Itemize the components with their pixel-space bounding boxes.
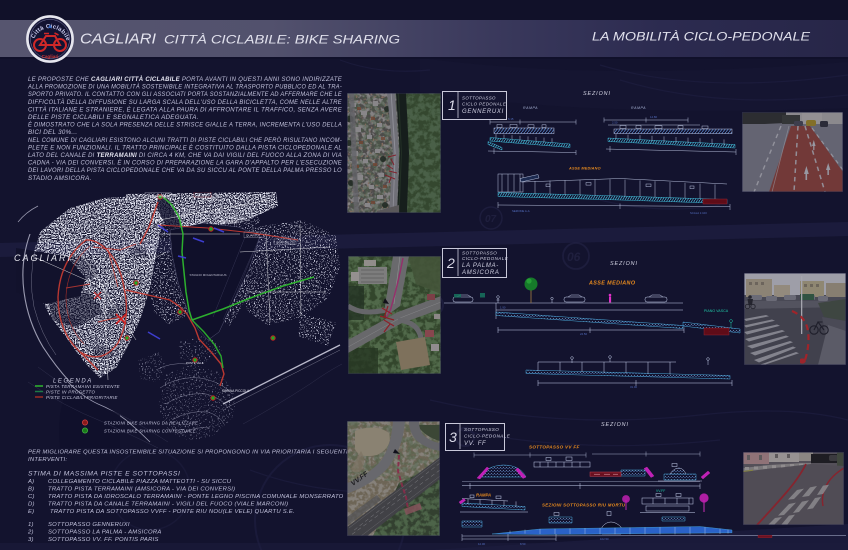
svg-text:6.15: 6.15: [508, 117, 514, 121]
svg-text:BICI DEL 30%...: BICI DEL 30%...: [28, 129, 77, 136]
svg-text:SOTTOPASSO VV FF: SOTTOPASSO VV FF: [529, 445, 580, 450]
svg-text:CICLO-PEDONALE: CICLO-PEDONALE: [462, 256, 509, 261]
svg-text:SELARGIUS: SELARGIUS: [201, 196, 218, 200]
svg-text:QUARTELLO: QUARTELLO: [276, 240, 295, 244]
svg-text:2: 2: [446, 255, 455, 271]
svg-text:D)TRATTO PISTA DA CANALE TERRA: D)TRATTO PISTA DA CANALE TERRAMAINI - VI…: [28, 502, 288, 508]
svg-text:STAZIONI BIKE SHARING DA REALI: STAZIONI BIKE SHARING DA REALIZZARE: [104, 421, 198, 426]
svg-text:DELLE PISTE CICLABILI E SEGNAL: DELLE PISTE CICLABILI E SEGNALETICA ADEG…: [28, 114, 199, 121]
svg-text:RAMPA: RAMPA: [523, 106, 538, 110]
svg-text:STADIO AMSICORA.: STADIO AMSICORA.: [28, 175, 92, 182]
svg-text:MONSERRATO: MONSERRATO: [148, 194, 170, 198]
svg-text:SOTTOPASSO: SOTTOPASSO: [464, 427, 499, 432]
svg-text:SPORTO PRIVATO. IL CONTATTO CO: SPORTO PRIVATO. IL CONTATTO CON GLI ASSO…: [28, 91, 343, 98]
svg-text:2.50: 2.50: [612, 121, 618, 125]
svg-text:06: 06: [567, 250, 581, 264]
svg-text:SEZIONE A-A: SEZIONE A-A: [512, 209, 530, 213]
svg-text:CAGLIARI: CAGLIARI: [14, 253, 72, 263]
svg-text:ASSE MEDIANO: ASSE MEDIANO: [588, 281, 636, 287]
svg-text:DEI LAVORI DELLA PISTA CICLOPE: DEI LAVORI DELLA PISTA CICLOPEDONALE CHE…: [28, 167, 342, 174]
svg-text:SOTTOPASSO: SOTTOPASSO: [462, 251, 497, 256]
svg-text:PONTE VELE: PONTE VELE: [186, 361, 204, 365]
svg-text:E)TRATTO PISTA DA SOTTOPASSO V: E)TRATTO PISTA DA SOTTOPASSO VVFF - PONT…: [28, 509, 295, 515]
svg-text:CICLO-PEDONALE: CICLO-PEDONALE: [464, 434, 511, 439]
svg-text:È DIMOSTRATO CHE LA SOLA PRESE: È DIMOSTRATO CHE LA SOLA PRESENZA DELLE …: [28, 122, 342, 129]
svg-text:SCALA 1:100: SCALA 1:100: [690, 211, 707, 215]
svg-text:LA PALMA-: LA PALMA-: [462, 263, 499, 269]
svg-text:LE PROPOSTE CHE CAGLIARI CITTÀ: LE PROPOSTE CHE CAGLIARI CITTÀ CICLABILE…: [28, 76, 343, 83]
svg-text:SEZIONI SOTTOPASSO RIU MORTU: SEZIONI SOTTOPASSO RIU MORTU: [542, 503, 626, 508]
svg-text:CITTÀ ITALIANE E STRANIERE, È: CITTÀ ITALIANE E STRANIERE, È LEGATA ALL…: [28, 106, 343, 113]
svg-text:PLETE E NON FUNZIONALI. IL TRA: PLETE E NON FUNZIONALI. IL TRATTO PRINCI…: [28, 144, 342, 151]
svg-text:ALLA PROMOZIONE DI UNA MOBILIT: ALLA PROMOZIONE DI UNA MOBILITÀ SOSTENIB…: [27, 84, 342, 91]
svg-text:PISTA TERRAMAINI ESISTENTE: PISTA TERRAMAINI ESISTENTE: [46, 384, 120, 389]
svg-text:14.80: 14.80: [650, 115, 657, 119]
svg-text:C)TRATTO PISTA DA IDROSCALO TE: C)TRATTO PISTA DA IDROSCALO TERRAMAINI -…: [28, 494, 344, 500]
svg-text:RAMPA: RAMPA: [476, 493, 491, 498]
svg-text:2)SOTTOPASSO LA PALMA - AMSICO: 2)SOTTOPASSO LA PALMA - AMSICORA: [27, 530, 162, 536]
svg-text:1)SOTTOPASSO GENNERUXI: 1)SOTTOPASSO GENNERUXI: [28, 522, 130, 528]
svg-text:8.50: 8.50: [520, 542, 526, 546]
svg-text:B)TRATTO PISTA TERRAMAINI (AMS: B)TRATTO PISTA TERRAMAINI (AMSICORA - VI…: [28, 487, 235, 493]
svg-text:PISTE CICLABILI PRIORITARIE: PISTE CICLABILI PRIORITARIE: [46, 395, 118, 400]
svg-text:31.00: 31.00: [630, 385, 637, 389]
svg-text:102.50: 102.50: [600, 537, 609, 541]
svg-text:PIANO VASCA: PIANO VASCA: [704, 309, 729, 313]
svg-text:07: 07: [485, 214, 497, 225]
svg-text:PISTE IN PROGETTO: PISTE IN PROGETTO: [46, 390, 95, 395]
svg-text:QUARTUCCIU: QUARTUCCIU: [218, 219, 238, 223]
svg-text:MARINA PICCOLA: MARINA PICCOLA: [222, 389, 250, 393]
svg-text:PER MIGLIORARE QUESTA INSOSTEN: PER MIGLIORARE QUESTA INSOSTENIBILE SITU…: [28, 450, 348, 456]
svg-text:LATO DEL CANALE DI TERRAMAINI: LATO DEL CANALE DI TERRAMAINI DI CIRCA 4…: [28, 152, 342, 159]
svg-text:VV.FF: VV.FF: [656, 489, 665, 493]
svg-text:DIFFICOLTÀ DELLA DIFFUSIONE SU: DIFFICOLTÀ DELLA DIFFUSIONE SU LARGA SCA…: [28, 99, 343, 106]
svg-text:A)COLLEGAMENTO CICLABILE PIAZZ: A)COLLEGAMENTO CICLABILE PIAZZA MATTEOTT…: [27, 479, 232, 485]
svg-text:STIMA DI MASSIMA PISTE E SOTTO: STIMA DI MASSIMA PISTE E SOTTOPASSI: [28, 471, 180, 478]
svg-text:RAMPA: RAMPA: [631, 106, 646, 110]
svg-text:3)SOTTOPASSO VV. FF. PONTIS PA: 3)SOTTOPASSO VV. FF. PONTIS PARIS: [28, 537, 159, 543]
svg-text:1.90: 1.90: [500, 306, 506, 310]
svg-text:CADNA - VIA DEI CONVERSI. È IN: CADNA - VIA DEI CONVERSI. È IN CORSO DI …: [28, 160, 343, 167]
svg-text:NEL COMUNE DI CAGLIARI ESISTON: NEL COMUNE DI CAGLIARI ESISTONO ALCUNI T…: [28, 137, 342, 144]
svg-text:12.00: 12.00: [478, 542, 485, 546]
svg-text:ASSE MEDIANO: ASSE MEDIANO: [568, 167, 601, 171]
svg-text:INTERVENTI:: INTERVENTI:: [28, 457, 67, 463]
svg-text:STAGNO MOLENTARGIUS: STAGNO MOLENTARGIUS: [189, 273, 226, 277]
svg-text:QUARTU: QUARTU: [246, 233, 259, 237]
svg-text:24.50: 24.50: [580, 332, 587, 336]
svg-text:STAZIONI BIKE SHARING CONTESTU: STAZIONI BIKE SHARING CONTESTUALE: [104, 429, 196, 434]
